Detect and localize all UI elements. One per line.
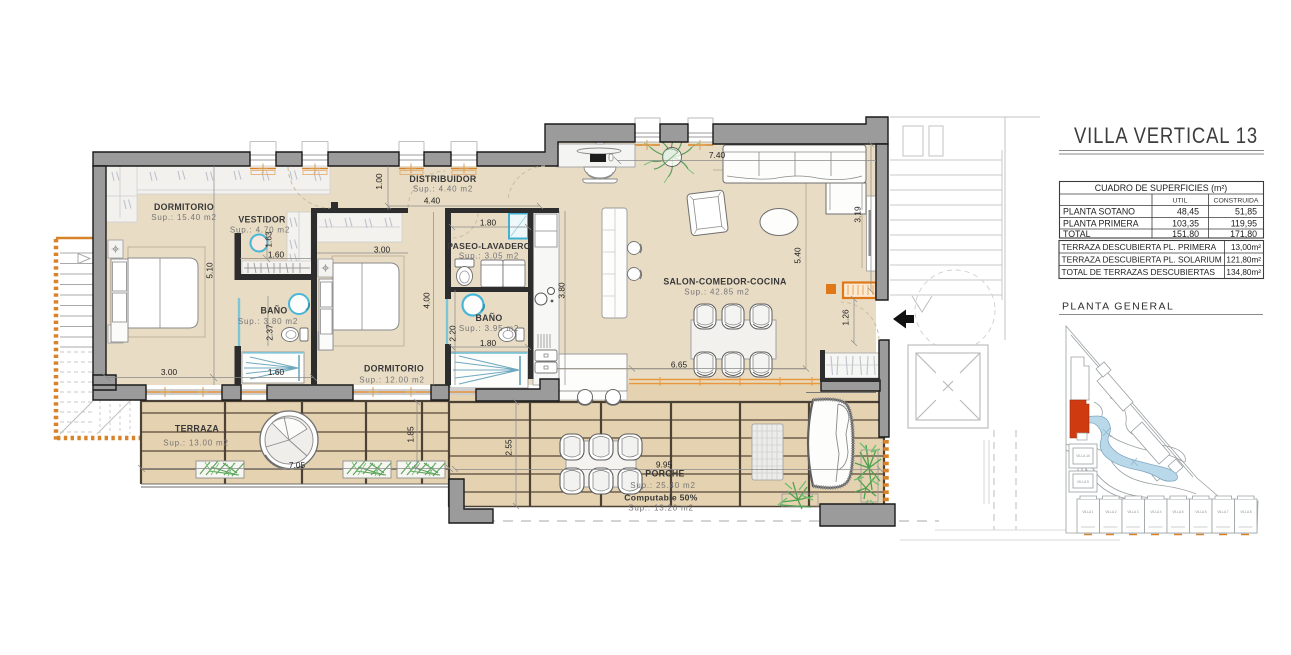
svg-text:VILLA 9: VILLA 9 — [1077, 480, 1089, 484]
svg-text:PLANTA GENERAL: PLANTA GENERAL — [1062, 301, 1174, 313]
svg-text:51,85: 51,85 — [1235, 207, 1257, 217]
svg-text:48,45: 48,45 — [1177, 207, 1199, 217]
svg-text:Sup.: 13.20 m2: Sup.: 13.20 m2 — [628, 504, 693, 513]
svg-text:Sup.: 15.40 m2: Sup.: 15.40 m2 — [151, 213, 216, 222]
svg-text:VILLA 2: VILLA 2 — [1105, 510, 1116, 514]
svg-text:VILLA 8: VILLA 8 — [1240, 510, 1251, 514]
svg-text:PLANTA SOTANO: PLANTA SOTANO — [1063, 207, 1135, 217]
svg-text:DORMITORIO: DORMITORIO — [154, 202, 214, 212]
svg-text:VILLA 5: VILLA 5 — [1172, 510, 1183, 514]
svg-text:PLANTA PRIMERA: PLANTA PRIMERA — [1063, 219, 1139, 229]
svg-text:1.80: 1.80 — [480, 338, 497, 348]
svg-text:9.95: 9.95 — [656, 460, 673, 470]
svg-text:3.80: 3.80 — [557, 282, 567, 299]
svg-text:VILLA 6: VILLA 6 — [1195, 510, 1206, 514]
svg-text:3.00: 3.00 — [374, 245, 391, 255]
svg-text:VILLA 4: VILLA 4 — [1150, 510, 1161, 514]
svg-text:Sup.: 4.40 m2: Sup.: 4.40 m2 — [413, 185, 473, 194]
svg-text:121,80m²: 121,80m² — [1226, 256, 1261, 265]
svg-text:13,00m²: 13,00m² — [1231, 243, 1261, 252]
svg-text:1.63: 1.63 — [264, 231, 274, 248]
svg-text:TERRAZA DESCUBIERTA PL. PRIMER: TERRAZA DESCUBIERTA PL. PRIMERA — [1062, 242, 1217, 252]
svg-text:DISTRIBUIDOR: DISTRIBUIDOR — [409, 174, 476, 184]
svg-text:6.65: 6.65 — [671, 360, 688, 370]
svg-text:4.40: 4.40 — [424, 196, 441, 206]
svg-text:Sup.: 4.70 m2: Sup.: 4.70 m2 — [230, 226, 290, 235]
svg-text:DORMITORIO: DORMITORIO — [364, 364, 424, 374]
svg-text:Sup.: 13.00 m2: Sup.: 13.00 m2 — [163, 439, 228, 448]
svg-text:119,95: 119,95 — [1231, 219, 1257, 229]
svg-text:TOTAL: TOTAL — [1063, 229, 1091, 239]
svg-text:BAÑO: BAÑO — [260, 306, 287, 316]
svg-text:CONSTRUIDA: CONSTRUIDA — [1214, 198, 1259, 205]
svg-text:2.55: 2.55 — [504, 439, 514, 456]
svg-text:UTIL: UTIL — [1173, 198, 1188, 205]
svg-text:5.10: 5.10 — [205, 262, 215, 279]
svg-text:Sup.: 3.95 m2: Sup.: 3.95 m2 — [459, 324, 519, 333]
svg-text:171,80: 171,80 — [1230, 229, 1257, 239]
svg-text:Computable 50%: Computable 50% — [624, 493, 697, 503]
svg-text:2.37: 2.37 — [265, 324, 275, 341]
svg-text:103,35: 103,35 — [1172, 219, 1199, 229]
svg-text:TERRAZA DESCUBIERTA PL. SOLARI: TERRAZA DESCUBIERTA PL. SOLARIUM — [1062, 255, 1222, 265]
svg-text:VILLA 7: VILLA 7 — [1217, 510, 1228, 514]
svg-text:1.85: 1.85 — [406, 426, 416, 443]
svg-text:VILLA VERTICAL 13: VILLA VERTICAL 13 — [1074, 123, 1258, 148]
svg-text:TERRAZA: TERRAZA — [175, 424, 219, 434]
svg-text:3.19: 3.19 — [853, 206, 863, 223]
svg-text:PORCHE: PORCHE — [645, 469, 684, 479]
svg-text:1.26: 1.26 — [841, 309, 851, 326]
svg-text:PASEO-LAVADERO: PASEO-LAVADERO — [447, 241, 530, 251]
svg-text:151,80: 151,80 — [1172, 229, 1199, 239]
svg-text:3.00: 3.00 — [161, 367, 178, 377]
svg-text:134,80m²: 134,80m² — [1226, 268, 1261, 277]
svg-text:VILLA 10: VILLA 10 — [1076, 454, 1090, 458]
svg-text:CUADRO DE SUPERFICIES (m²): CUADRO DE SUPERFICIES (m²) — [1095, 183, 1228, 193]
svg-text:1.60: 1.60 — [268, 250, 285, 260]
svg-text:5.40: 5.40 — [793, 247, 803, 264]
svg-text:Sup.: 25.40 m2: Sup.: 25.40 m2 — [630, 481, 695, 490]
svg-text:1.80: 1.80 — [480, 218, 497, 228]
svg-text:VILLA 1: VILLA 1 — [1082, 510, 1093, 514]
svg-text:1.60: 1.60 — [268, 367, 285, 377]
svg-text:Sup.: 42.85 m2: Sup.: 42.85 m2 — [684, 288, 749, 297]
svg-text:SALON-COMEDOR-COCINA: SALON-COMEDOR-COCINA — [663, 277, 787, 287]
svg-text:7.05: 7.05 — [289, 460, 306, 470]
svg-text:2.20: 2.20 — [448, 325, 458, 342]
svg-text:1.00: 1.00 — [374, 173, 384, 190]
svg-text:Sup.: 3.05 m2: Sup.: 3.05 m2 — [459, 252, 519, 261]
svg-text:VESTIDOR: VESTIDOR — [238, 215, 286, 225]
svg-text:4.00: 4.00 — [422, 292, 432, 309]
svg-text:VILLA 3: VILLA 3 — [1127, 510, 1138, 514]
svg-text:BAÑO: BAÑO — [475, 313, 502, 323]
svg-text:TOTAL DE TERRAZAS DESCUBIERTAS: TOTAL DE TERRAZAS DESCUBIERTAS — [1062, 267, 1216, 277]
svg-text:Sup.: 12.00 m2: Sup.: 12.00 m2 — [359, 376, 424, 385]
svg-text:7.40: 7.40 — [709, 150, 726, 160]
